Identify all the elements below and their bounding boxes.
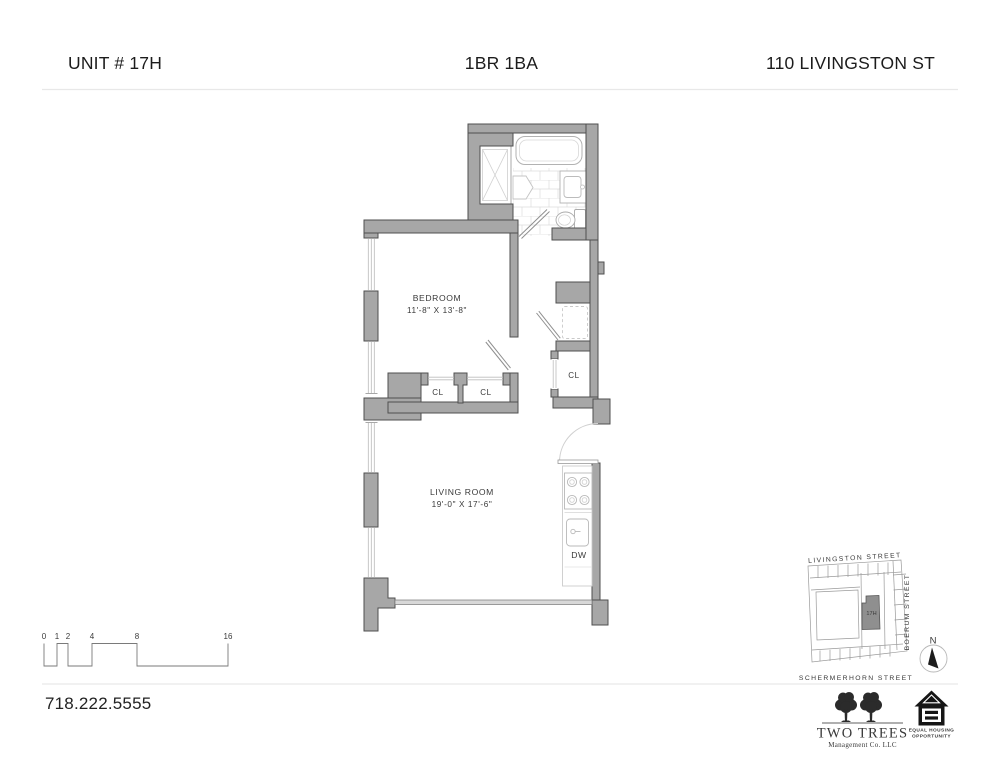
scale-tick-label: 1 <box>55 632 60 641</box>
bedroom-door <box>486 340 511 370</box>
south-window-wall <box>395 600 592 605</box>
scale-tick-label: 8 <box>135 632 140 641</box>
eho-text-line1: EQUAL HOUSING <box>909 728 955 734</box>
two-trees-title: TWO TREES <box>817 726 909 742</box>
window <box>366 238 378 291</box>
two-trees-subtitle: Management Co. LLC <box>828 741 897 749</box>
closet-sliding-doors <box>428 359 558 389</box>
stove-fixture <box>565 473 593 509</box>
eho-text-line2: OPPORTUNITY <box>912 734 951 740</box>
scale-tick-label: 4 <box>90 632 95 641</box>
bedroom-label: BEDROOM <box>413 293 462 303</box>
shower-fixture <box>479 146 511 204</box>
tree-icon <box>835 692 857 722</box>
closet-label: CL <box>432 388 443 397</box>
bedroom-dims: 11'-8" X 13'-8" <box>407 306 467 315</box>
tree-icon <box>860 692 882 722</box>
scale-tick-label: 16 <box>224 632 233 641</box>
window <box>366 527 378 578</box>
street-label-boerum: BOERUM STREET <box>904 574 911 651</box>
floorplan-page: UNIT # 17H 1BR 1BA 110 LIVINGSTON ST 718… <box>0 0 1000 773</box>
north-label: N <box>930 636 937 647</box>
dishwasher-label: DW <box>571 550 587 560</box>
floor-plan-canvas: BEDROOM 11'-8" X 13'-8" LIVING ROOM 19'-… <box>0 0 1000 773</box>
entry-door <box>558 424 598 464</box>
closet-label: CL <box>568 371 579 380</box>
street-label-schermerhorn: SCHERMERHORN STREET <box>799 675 913 682</box>
map-unit-label: 17H <box>866 611 876 617</box>
scale-tick-label: 2 <box>66 632 71 641</box>
floor-plan: BEDROOM 11'-8" X 13'-8" LIVING ROOM 19'-… <box>364 124 610 631</box>
utility-closet-door <box>537 311 561 340</box>
utility-closet-box <box>563 307 588 339</box>
scale-bar: 0 1 2 4 8 16 <box>42 632 233 666</box>
location-map: 17H LIVINGSTON STREET BOERUM STREET SCHE… <box>799 552 947 682</box>
kitchen <box>563 466 593 586</box>
bathroom-sink-fixture <box>560 171 586 203</box>
north-compass-icon: N <box>920 636 947 673</box>
scale-tick-label: 0 <box>42 632 47 641</box>
closet-label: CL <box>480 388 491 397</box>
kitchen-sink-fixture <box>567 519 589 546</box>
window <box>366 341 378 394</box>
bathtub-fixture <box>513 133 586 168</box>
two-trees-logo: TWO TREES Management Co. LLC <box>817 692 909 749</box>
living-room-dims: 19'-0" X 17'-6" <box>432 500 493 509</box>
equal-housing-icon: EQUAL HOUSING OPPORTUNITY <box>909 691 955 740</box>
window <box>366 422 378 473</box>
living-room-label: LIVING ROOM <box>430 487 494 497</box>
